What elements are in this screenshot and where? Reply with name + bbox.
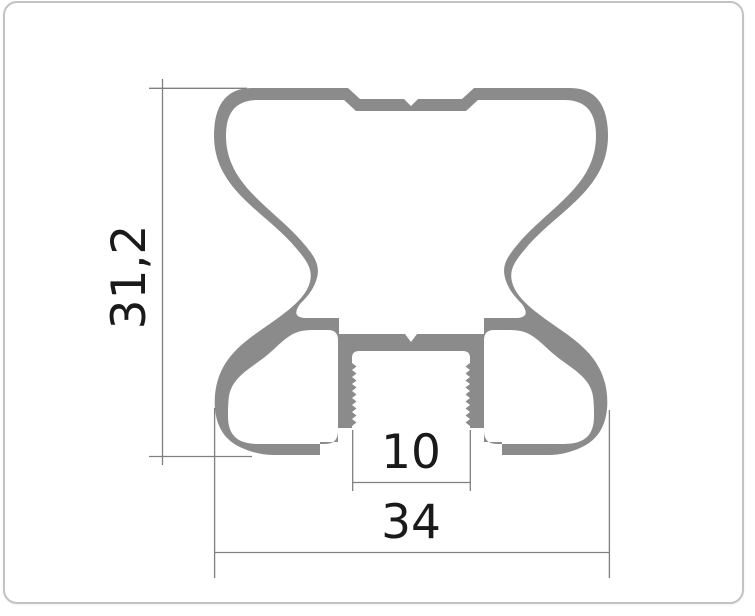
overall-width-dimension-label: 34 bbox=[381, 495, 441, 550]
slot-width-dimension-label: 10 bbox=[381, 425, 441, 480]
screenshot-stage: 31,2 10 34 bbox=[0, 0, 755, 616]
technical-drawing: 31,2 10 34 bbox=[0, 0, 755, 616]
profile-shape bbox=[214, 88, 608, 455]
profile-cross-section-outline bbox=[214, 88, 608, 455]
height-dimension-label: 31,2 bbox=[102, 225, 157, 330]
dimension-labels: 31,2 10 34 bbox=[102, 225, 441, 550]
